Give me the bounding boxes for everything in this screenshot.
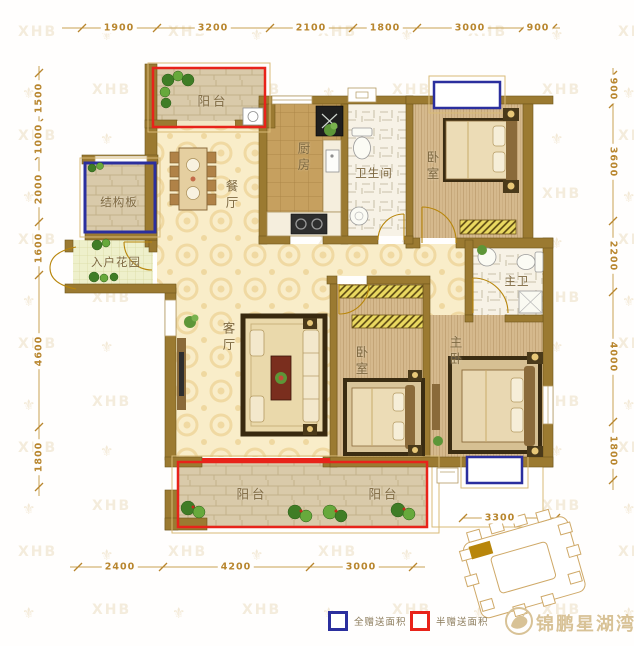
legend-half-gift-swatch: [410, 611, 430, 631]
dim-left-1500: 1500: [34, 80, 45, 116]
room-label-master-bath: 主卫: [505, 273, 530, 289]
plant-icon: [433, 436, 443, 446]
dim-top-3200: 3200: [195, 23, 231, 34]
bathroom-vent-window: [348, 88, 376, 102]
washer-icon: [243, 108, 263, 125]
room-label-bedroom-top: 卧室: [423, 151, 442, 184]
kitchen-sink: [326, 150, 339, 172]
brand-logo: 锦鹏星湖湾: [536, 610, 634, 636]
dim-offset-3300: 3300: [482, 513, 518, 524]
window-bottom-fullgift: [467, 457, 522, 483]
room-label-entry-garden: 入户花园: [91, 254, 141, 270]
dim-top-900: 900: [524, 23, 553, 34]
tv-cabinet: [432, 384, 440, 430]
dim-top-2100: 2100: [293, 23, 329, 34]
room-label-structural-slab: 结构板: [100, 194, 138, 210]
dim-right-4000: 4000: [608, 339, 619, 375]
brand-name: 锦鹏星湖湾: [536, 610, 634, 636]
armchair: [250, 396, 264, 422]
sink: [350, 207, 368, 225]
toilet: [354, 137, 371, 159]
room-label-kitchen: 厨房: [294, 142, 313, 175]
toilet: [517, 255, 535, 270]
room-label-master-bedroom: 主卧: [446, 336, 465, 369]
washer-icon: [437, 468, 458, 483]
armchair: [250, 330, 264, 356]
room-label-balcony-bottom-right: 阳台: [368, 484, 399, 503]
bed: [352, 388, 414, 446]
dim-left-1800: 1800: [34, 439, 45, 475]
wardrobe: [339, 285, 423, 298]
dim-right-3600: 3600: [608, 144, 619, 180]
room-label-balcony-top: 阳台: [197, 91, 228, 110]
dim-bottom-3000: 3000: [343, 562, 379, 573]
living-balcony-sill: [202, 458, 330, 461]
headboard: [524, 366, 535, 446]
dim-bottom-2400: 2400: [102, 562, 138, 573]
legend-full-gift: 全赠送面积: [328, 611, 407, 631]
dim-right-900: 900: [608, 75, 619, 104]
dim-left-4600: 4600: [34, 333, 45, 369]
room-label-bedroom-mid: 卧室: [352, 346, 371, 379]
dim-right-2200: 2200: [608, 238, 619, 274]
legend-half-gift-label: 半赠送面积: [436, 614, 489, 628]
dim-left-1000: 1000: [34, 121, 45, 157]
headboard: [405, 385, 415, 449]
room-label-living: 客厅: [219, 322, 238, 355]
dim-top-1800: 1800: [367, 23, 403, 34]
room-label-bathroom: 卫生间: [355, 165, 393, 181]
legend-full-gift-swatch: [328, 611, 348, 631]
room-label-dining: 餐厅: [222, 180, 241, 213]
floorplan-page: XHB ⚜ XHB ⚜: [0, 0, 634, 646]
legend-full-gift-label: 全赠送面积: [354, 614, 407, 628]
dim-left-1600: 1600: [34, 230, 45, 266]
dim-top-3000: 3000: [452, 23, 488, 34]
dim-left-2000: 2000: [34, 171, 45, 207]
wardrobe: [352, 315, 423, 328]
legend-half-gift: 半赠送面积: [410, 611, 489, 631]
floorplan-graphic: XHB ⚜ XHB ⚜: [0, 0, 634, 646]
living-window: [165, 300, 176, 336]
dim-bottom-4200: 4200: [218, 562, 254, 573]
room-label-balcony-bottom-left: 阳台: [236, 484, 267, 503]
dim-right-1800: 1800: [608, 433, 619, 469]
wardrobe: [460, 220, 516, 234]
window-top-fullgift: [434, 82, 500, 108]
dim-top-1900: 1900: [101, 23, 137, 34]
headboard: [506, 118, 517, 182]
